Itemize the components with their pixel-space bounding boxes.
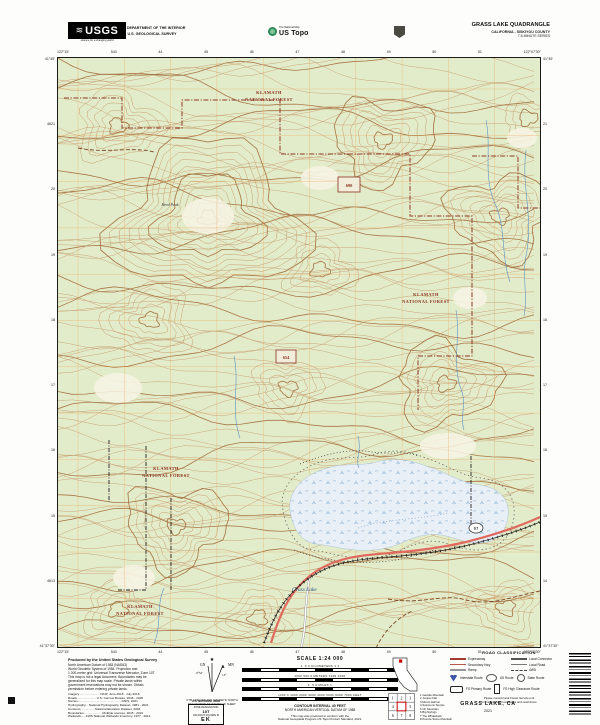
edge-label: 50: [432, 50, 436, 54]
forest-label-line2: NATIONAL FOREST: [245, 97, 293, 102]
peak-name-label: Herd Peak: [160, 202, 178, 207]
edge-label: 20: [543, 187, 547, 191]
forest-road-number: 654: [283, 355, 290, 360]
adjoining-grid-svg: 1 2 3 4 5 6 7 8: [388, 693, 415, 720]
secondary-hwy-sample: [450, 664, 466, 666]
expressway-sample: [450, 658, 466, 660]
standard-line2: National Geospatial Program US Topo Prod…: [238, 718, 402, 722]
legend-title: ROAD CLASSIFICATION: [450, 650, 568, 655]
quadrangle-title-block: GRASS LAKE QUADRANGLE CALIFORNIA - SISKI…: [410, 22, 550, 39]
legend-label: Local Road: [529, 663, 545, 667]
forest-road-box-654: 654: [276, 350, 296, 363]
edge-label: 19: [543, 253, 547, 257]
forest-road-number: 690: [346, 183, 353, 188]
quad-title: GRASS LAKE QUADRANGLE: [410, 22, 550, 30]
local-connector-sample: [511, 658, 527, 660]
scale-bar-miles: 1 .5 0 MILES 1: [242, 683, 398, 691]
edge-label: 122°15': [57, 650, 69, 654]
adjoining-quad-name: 8 Pumice Stone Mountain: [420, 718, 480, 721]
edge-label: 41°37'30": [543, 644, 558, 648]
edge-label: 543: [111, 650, 117, 654]
state-route-shield-icon: [517, 674, 525, 682]
edge-label: 17: [51, 383, 55, 387]
usgs-wave-icon: ≋: [76, 26, 84, 35]
magnetic-north-label: MN: [228, 663, 234, 667]
edge-label: 20: [51, 187, 55, 191]
quad-series: 7.5-MINUTE SERIES: [410, 34, 550, 39]
legend-label: FS High Clearance Route: [503, 687, 539, 691]
credit-line: Wetlands......FWS National Wetlands Inve…: [68, 715, 193, 719]
us-route-shield-icon: [486, 674, 497, 682]
edge-label: 4613: [47, 579, 55, 583]
california-outline-svg: [391, 657, 419, 693]
adjoining-cell-number: 8: [409, 713, 411, 718]
usng-square-id: EK: [189, 717, 223, 723]
scale-bar: [242, 678, 398, 682]
edge-label: 15: [543, 514, 547, 518]
edge-label: 51: [478, 50, 482, 54]
edge-label: 47: [295, 50, 299, 54]
ustopo-brand: US Topo: [279, 30, 309, 37]
road-classification-legend: ROAD CLASSIFICATION Expressway Local Con…: [450, 650, 568, 705]
legend-label: State Route: [528, 676, 545, 680]
scale-bar: [242, 697, 398, 701]
edge-label: 4621: [47, 122, 55, 126]
edge-label: 18: [543, 318, 547, 322]
forest-service-shield-icon: [394, 26, 405, 38]
scale-bar-kilometers: 1 .5 0 KILOMETERS 1 2: [242, 664, 398, 672]
scale-bar-feet: 1000 0 1000 2000 3000 4000 5000 6000 700…: [242, 693, 398, 701]
legend-label: Expressway: [468, 657, 485, 661]
fs-primary-marker-icon: [450, 686, 463, 693]
forest-label-line2: NATIONAL FOREST: [402, 299, 450, 304]
us97-route-shield: 97: [469, 523, 483, 533]
edge-label: 17: [543, 383, 547, 387]
quad-location-marker: [399, 660, 402, 663]
usgs-topo-sheet: ≋ USGS science for a changing world U.S.…: [0, 0, 600, 725]
edge-label: 46: [250, 50, 254, 54]
edge-label: 49: [387, 650, 391, 654]
adjoining-quads-grid: 1 2 3 4 5 6 7 8 ADJOINING QUADRANGLES: [386, 693, 416, 725]
adjoining-cell-number: 3: [409, 696, 411, 701]
edge-label: 16: [51, 448, 55, 452]
edge-label: 44: [158, 50, 162, 54]
ustopo-logo: The National Map US Topo: [268, 27, 309, 37]
legend-label: FS Primary Route: [466, 687, 491, 691]
local-road-sample: [511, 664, 527, 665]
edge-label: 122°15': [57, 50, 69, 54]
scale-bar: [242, 668, 398, 672]
usgs-tagline: science for a changing world: [68, 39, 126, 42]
edge-labels-right: 41°45'212019181716151441°37'30": [543, 57, 561, 648]
adjoining-cell-number: 1: [391, 696, 393, 701]
topo-map-svg: 690 654 97 KLAMATH NATIONAL FOREST KLAMA…: [58, 58, 540, 647]
grid-north-label: GN: [200, 663, 206, 667]
edge-label: 19: [51, 253, 55, 257]
usng-title: U.S. NATIONAL GRID: [188, 699, 224, 703]
dept-line1: U.S. DEPARTMENT OF THE INTERIOR: [112, 26, 192, 32]
scale-block: SCALE 1:24 000 1 .5 0 KILOMETERS 1 2 100…: [238, 656, 402, 722]
forest-label-line2: NATIONAL FOREST: [142, 473, 190, 478]
forest-road-box-690: 690: [338, 177, 360, 192]
edge-label: 46: [250, 650, 254, 654]
adjoining-cell-number: 7: [400, 713, 402, 718]
scale-title: SCALE 1:24 000: [238, 656, 402, 662]
forest-label-line2: NATIONAL FOREST: [116, 611, 164, 616]
adjoining-cell-number: 2: [400, 696, 402, 701]
produced-line: permission before entering private lands…: [68, 687, 188, 691]
adjoining-cell-number: 4: [391, 704, 393, 709]
usng-box: U.S. NATIONAL GRID ZONE DESIGNATION 10T …: [188, 699, 224, 725]
mn-angle: 13°: [222, 673, 227, 677]
edge-label: 45: [204, 50, 208, 54]
edge-label: 45: [204, 650, 208, 654]
edge-label: 47: [295, 650, 299, 654]
forest-label-line1: KLAMATH: [127, 604, 153, 609]
sheet-name-block: GRASS LAKE, CA 2021: [445, 701, 531, 713]
legend-label: Interstate Route: [460, 676, 483, 680]
edge-label: 41°37'30": [40, 644, 55, 648]
corner-registration-mark: [8, 697, 15, 704]
forest-label-line1: KLAMATH: [256, 90, 282, 95]
edge-label: 41°45': [45, 57, 55, 61]
edge-label: 122°07'30": [524, 50, 541, 54]
legend-label: 4WD: [529, 668, 536, 672]
dept-line2: U.S. GEOLOGICAL SURVEY: [112, 32, 192, 38]
edge-label: 543: [111, 50, 117, 54]
gn-angle: 0°52': [196, 671, 203, 675]
lake-name-label: Grass Lake: [292, 587, 317, 593]
ramp-sample: [450, 669, 466, 670]
declination-svg: ★ MN 13° GN 0°52': [184, 656, 240, 694]
data-sources-block: Imagery.........................NAIP, Ju…: [68, 693, 193, 719]
edge-label: 14: [543, 579, 547, 583]
production-credit-block: Produced by the United States Geological…: [68, 658, 188, 691]
fs-high-clearance-marker-icon: [494, 684, 500, 694]
legend-label: Secondary Hwy: [468, 663, 490, 667]
edge-label: 21: [543, 122, 547, 126]
forest-label-line1: KLAMATH: [153, 466, 179, 471]
edge-labels-top: 122°15'5434445464748495051122°07'30": [57, 50, 541, 54]
legend-label: Local Connector: [529, 657, 552, 661]
ustopo-globe-icon: [268, 27, 277, 36]
edge-label: 49: [387, 50, 391, 54]
scale-bar: [242, 687, 398, 691]
forest-label-line1: KLAMATH: [413, 292, 439, 297]
sheet-year: 2021: [445, 709, 531, 713]
adjoining-cell-number: 6: [391, 713, 393, 718]
edge-label: 48: [341, 50, 345, 54]
4wd-sample: [511, 670, 527, 671]
scale-bar-meters: 1000 500 0 METERS 1000 2000: [242, 674, 398, 682]
edge-label: 48: [341, 650, 345, 654]
sheet-name: GRASS LAKE, CA: [445, 701, 531, 707]
legend-label: Ramp: [468, 668, 477, 672]
route-number: 97: [474, 526, 479, 531]
edge-label: 15: [51, 514, 55, 518]
edge-label: 18: [51, 318, 55, 322]
barcode: [569, 653, 591, 717]
edge-label: 41°45': [543, 57, 553, 61]
edge-label: 50: [432, 650, 436, 654]
vertical-datum: NORTH AMERICAN VERTICAL DATUM OF 1988: [238, 708, 402, 712]
edge-label: 44: [158, 650, 162, 654]
map-canvas: 690 654 97 KLAMATH NATIONAL FOREST KLAMA…: [57, 57, 541, 648]
edge-label: 16: [543, 448, 547, 452]
edge-labels-left: 41°45'4621201918171615461341°37'30": [37, 57, 55, 648]
interstate-shield-icon: [450, 675, 457, 682]
department-heading: U.S. DEPARTMENT OF THE INTERIOR U.S. GEO…: [112, 26, 192, 37]
true-north-star: ★: [210, 657, 215, 663]
adjoining-cell-number: 5: [409, 704, 411, 709]
legend-label: US Route: [500, 676, 514, 680]
